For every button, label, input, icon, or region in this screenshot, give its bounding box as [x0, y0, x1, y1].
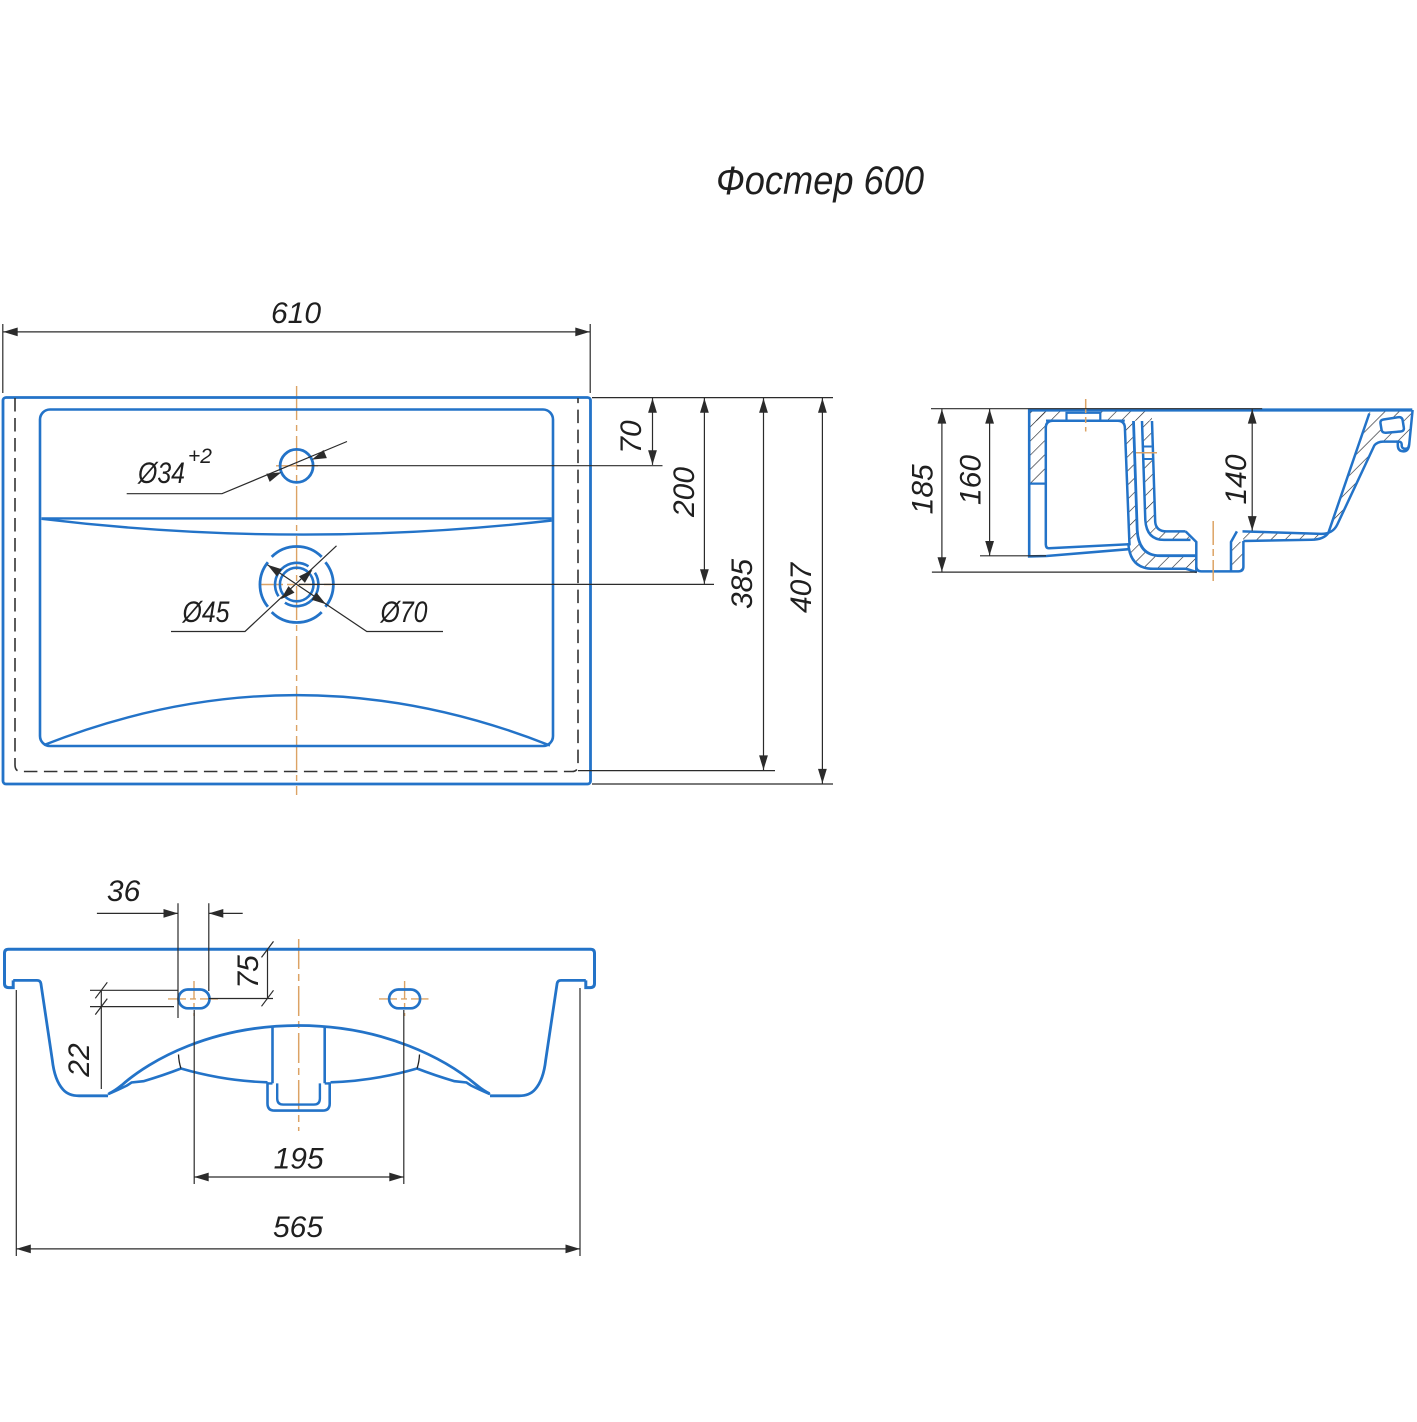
svg-text:140: 140: [1220, 454, 1253, 504]
svg-text:385: 385: [726, 559, 759, 609]
svg-text:Ø34: Ø34: [137, 457, 185, 490]
svg-text:565: 565: [273, 1211, 323, 1244]
svg-text:70: 70: [615, 420, 648, 454]
svg-text:75: 75: [232, 955, 265, 989]
svg-text:Ø45: Ø45: [182, 596, 230, 629]
svg-text:200: 200: [668, 467, 701, 518]
svg-text:195: 195: [274, 1143, 324, 1176]
svg-text:185: 185: [907, 464, 940, 514]
svg-text:+2: +2: [188, 445, 212, 468]
svg-text:Фостер 600: Фостер 600: [716, 159, 924, 203]
svg-text:Ø70: Ø70: [380, 596, 428, 629]
svg-text:160: 160: [954, 455, 987, 505]
svg-text:610: 610: [271, 297, 321, 330]
svg-text:407: 407: [785, 562, 818, 613]
svg-text:22: 22: [63, 1043, 96, 1078]
svg-text:36: 36: [107, 875, 141, 908]
